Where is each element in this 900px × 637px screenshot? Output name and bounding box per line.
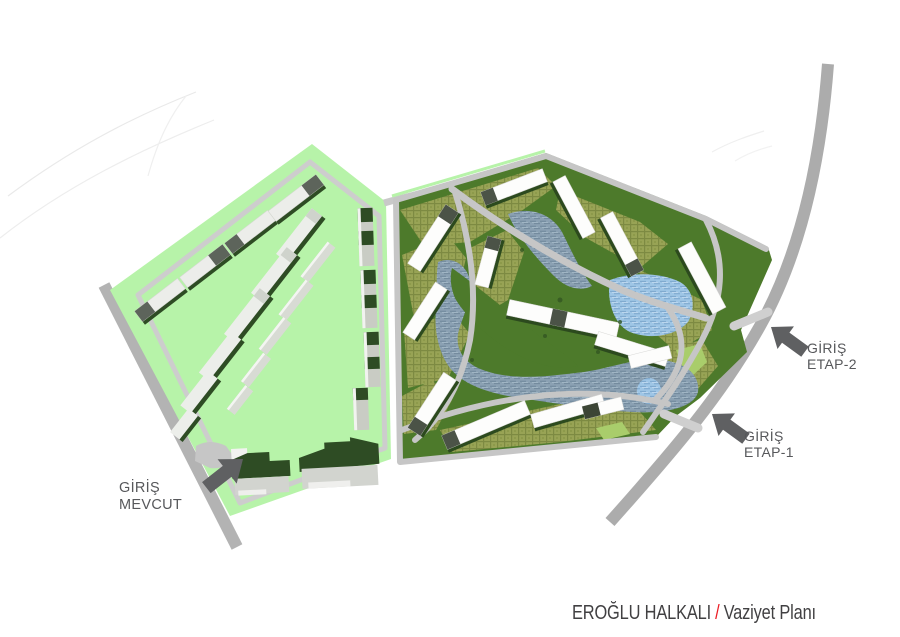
- entrance-label-etap2: GİRİŞ ETAP-2: [807, 341, 857, 372]
- title-separator: /: [711, 602, 724, 624]
- entrance-label-mevcut-line2: MEVCUT: [119, 497, 182, 514]
- entrance-label-etap1-line2: ETAP-1: [744, 445, 794, 461]
- sheet-title: EROĞLU HALKALI/Vaziyet Planı: [572, 602, 816, 625]
- entrance-label-mevcut-line1: GİRİŞ: [119, 480, 182, 497]
- site-plan-page: { "title": { "project": "EROĞLU HALKALI"…: [0, 0, 900, 637]
- site-plan-canvas: [0, 0, 900, 637]
- entrance-label-etap1-line1: GİRİŞ: [744, 429, 794, 445]
- entrance-label-mevcut: GİRİŞ MEVCUT: [119, 480, 182, 514]
- entrance-arrow-etap2-icon: [763, 316, 813, 363]
- entrance-label-etap2-line1: GİRİŞ: [807, 341, 857, 357]
- drawing-name: Vaziyet Planı: [724, 602, 816, 624]
- project-name: EROĞLU HALKALI: [572, 602, 711, 624]
- entrance-label-etap1: GİRİŞ ETAP-1: [744, 429, 794, 460]
- entrance-label-etap2-line2: ETAP-2: [807, 357, 857, 373]
